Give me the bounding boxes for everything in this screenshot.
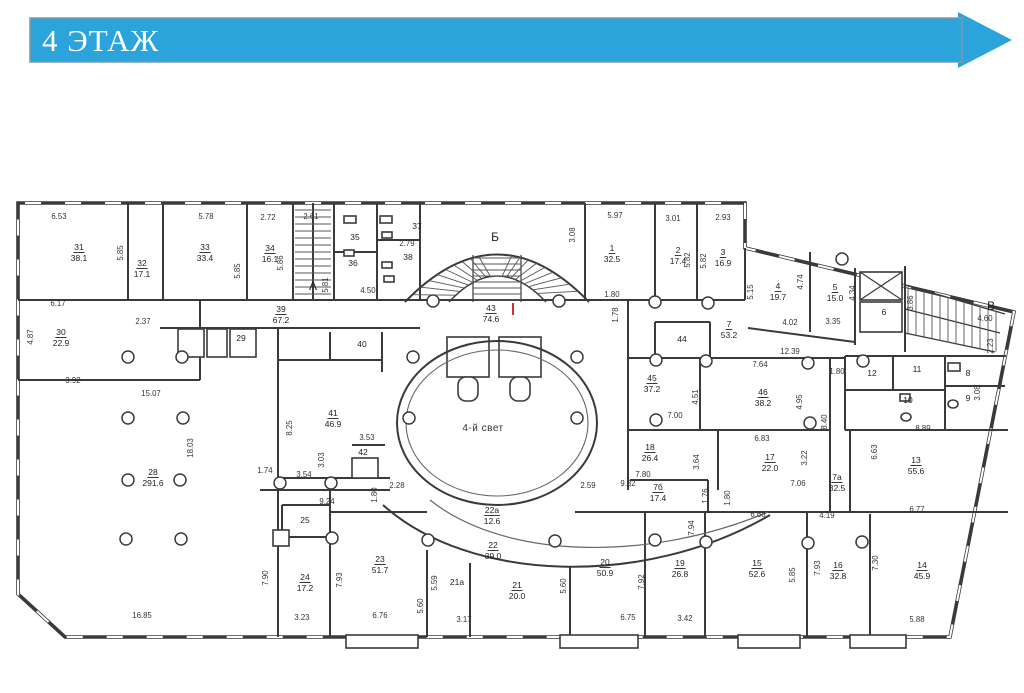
room-area: 17.1 [134, 269, 151, 279]
dimension-label: 6.75 [620, 613, 636, 622]
column [836, 253, 848, 265]
dimension-label: 7.00 [667, 411, 683, 420]
dimension-label: 4.74 [796, 274, 805, 290]
room-area: 53.2 [721, 330, 738, 340]
room-number: 4 [776, 281, 781, 291]
room-number: 11 [913, 364, 922, 374]
room-number: 16 [833, 560, 843, 570]
skylight-stem [458, 377, 478, 401]
room-number: 7 [727, 319, 732, 329]
wc-fixture [384, 276, 394, 282]
room-area: 32.8 [830, 571, 847, 581]
room-number: 22а [485, 505, 499, 515]
room-number: 46 [758, 387, 768, 397]
dimension-label: 6.53 [51, 212, 66, 221]
column [650, 414, 662, 426]
dimension-label: 4.50 [360, 286, 376, 295]
dimension-label: 12.39 [780, 347, 800, 356]
dimension-label: 1.80 [829, 367, 845, 376]
stair-label: А [309, 279, 317, 293]
room-number: 35 [350, 232, 360, 242]
dimension-label: 3.17 [456, 615, 471, 624]
dimension-label: 5.60 [559, 578, 568, 594]
dimension-label: 7.06 [790, 479, 805, 488]
dimension-label: 6.68 [750, 510, 765, 519]
room-42-box [352, 458, 378, 478]
dimension-label: 5.86 [276, 255, 285, 270]
column [122, 474, 134, 486]
dimension-label: 4.95 [795, 394, 804, 410]
column [326, 532, 338, 544]
dimension-label: 8.89 [915, 424, 930, 433]
column [802, 357, 814, 369]
room-area: 26.4 [642, 453, 659, 463]
column [274, 477, 286, 489]
dimension-label: 3.64 [692, 454, 701, 470]
facade-bay [850, 635, 906, 648]
dimension-label: 2.37 [135, 317, 150, 326]
column [650, 354, 662, 366]
floor-plan-page: 4 ЭТАЖ [0, 0, 1024, 693]
wc-fixture [382, 262, 392, 268]
dimension-label: 1.74 [257, 466, 273, 475]
dimension-label: 1.76 [701, 488, 710, 503]
skylight-stem [510, 377, 530, 401]
dimension-label: 3.42 [677, 614, 692, 623]
column [549, 535, 561, 547]
room-area: 22.0 [762, 463, 779, 473]
column [122, 351, 134, 363]
dimension-label: 2.61 [303, 212, 318, 221]
wc-fixture [948, 363, 960, 371]
dimension-label: 5.60 [416, 598, 425, 614]
room-area: 67.2 [273, 315, 290, 325]
room-area: 291.6 [142, 478, 164, 488]
dimension-label: 9.82 [620, 479, 635, 488]
dimension-label: 3.23 [294, 613, 309, 622]
page-title: 4 ЭТАЖ [42, 23, 159, 58]
header-bar [30, 18, 962, 62]
column [700, 355, 712, 367]
column [857, 355, 869, 367]
column [120, 533, 132, 545]
dimension-label: 9.24 [319, 497, 335, 506]
room-number: 38 [403, 252, 413, 262]
dimension-label: 2.79 [399, 239, 414, 248]
room-number: 12 [867, 368, 877, 378]
dimension-label: 3.03 [317, 452, 326, 467]
room-number: 37 [412, 221, 422, 231]
room-number: 30 [56, 327, 66, 337]
dimension-label: 3.92 [65, 376, 80, 385]
room-number: 8 [966, 368, 971, 378]
room-area: 55.6 [908, 466, 925, 476]
column [700, 536, 712, 548]
dimension-label: 5.82 [699, 253, 708, 268]
room-number: 28 [148, 467, 158, 477]
dimension-label: 4.87 [26, 329, 35, 344]
dimension-label: 1.80 [370, 487, 379, 503]
column [571, 351, 583, 363]
column [122, 412, 134, 424]
room-number: 29 [236, 333, 246, 343]
header-arrow-icon [958, 12, 1012, 68]
room-number: 6 [882, 307, 887, 317]
dimension-label: 6.83 [754, 434, 769, 443]
wc-fixture [344, 250, 354, 256]
room-number: 22 [488, 540, 498, 550]
wc-fixture [948, 400, 958, 408]
column [422, 534, 434, 546]
room-number: 33 [200, 242, 210, 252]
dimension-label: 7.93 [813, 560, 822, 575]
room-area: 39.0 [485, 551, 502, 561]
skylight-box [447, 337, 489, 377]
room-area: 12.6 [484, 516, 501, 526]
room-number: 10 [903, 395, 913, 405]
room-number: 3 [721, 247, 726, 257]
room-area: 50.9 [597, 568, 614, 578]
dimension-label: 3.01 [665, 214, 680, 223]
room-area: 17.4 [650, 493, 667, 503]
room-area: 17.2 [297, 583, 314, 593]
dimension-label: 5.97 [607, 211, 622, 220]
room-area: 26.8 [672, 569, 689, 579]
room-area: 52.6 [749, 569, 766, 579]
dimension-label: 6.76 [372, 611, 387, 620]
room-number: 21а [450, 577, 464, 587]
column [427, 295, 439, 307]
stair-label: В [987, 299, 995, 313]
floor-plan-svg: 4 ЭТАЖ [0, 0, 1024, 693]
facade-bay [346, 635, 418, 648]
wc-fixture [901, 413, 911, 421]
dimension-label: 3.08 [973, 385, 982, 400]
dimension-label: 3.35 [825, 317, 841, 326]
room-number: 1 [610, 243, 615, 253]
room-number: 17 [765, 452, 775, 462]
dimension-label: 5.15 [746, 284, 755, 300]
room-number: 15 [752, 558, 762, 568]
room-area: 37.2 [644, 384, 661, 394]
dimension-label: 7.90 [261, 570, 270, 586]
room-number: 18 [645, 442, 655, 452]
room-area: 51.7 [372, 565, 389, 575]
shaft-box [207, 329, 227, 357]
room-number: 42 [358, 447, 368, 457]
dimension-label: 3.53 [359, 433, 374, 442]
room-area: 32.5 [829, 483, 846, 493]
dimension-label: 1.80 [604, 290, 620, 299]
room-number: 39 [276, 304, 286, 314]
column [571, 412, 583, 424]
dimension-label: 8.25 [285, 420, 294, 436]
room-area: 38.1 [71, 253, 88, 263]
room-number: 31 [74, 242, 84, 252]
dimension-label: 2.59 [580, 481, 595, 490]
dimension-label: 3.22 [800, 450, 809, 465]
wc-fixture [344, 216, 356, 223]
dimension-label: 4.02 [782, 318, 797, 327]
column [407, 351, 419, 363]
room-number: 5 [833, 282, 838, 292]
room-number: 14 [917, 560, 927, 570]
room-number: 9 [966, 393, 971, 403]
column-box [273, 530, 289, 546]
dimension-label: 6.77 [909, 505, 924, 514]
room-number: 7а [832, 472, 842, 482]
column [649, 296, 661, 308]
facade-bay [738, 635, 800, 648]
column [802, 537, 814, 549]
room-number: 20 [600, 557, 610, 567]
dimension-label: 15.07 [141, 389, 161, 398]
dimension-label: 6.17 [50, 299, 65, 308]
room-number: 7б [653, 482, 663, 492]
room-number: 41 [328, 408, 338, 418]
dimension-label: 5.82 [683, 252, 692, 267]
dimension-label: 3.86 [906, 295, 915, 310]
dimension-label: 7.93 [335, 572, 344, 587]
dimension-label: 4.34 [848, 285, 857, 301]
dimension-label: 7.92 [637, 574, 646, 589]
column [177, 412, 189, 424]
dimension-label: 3.54 [296, 470, 312, 479]
room-area: 20.0 [509, 591, 526, 601]
room-number: 40 [357, 339, 367, 349]
dimension-label: 1.78 [611, 307, 620, 322]
column [403, 412, 415, 424]
room-number: 19 [675, 558, 685, 568]
stair-label: Б [491, 230, 499, 244]
dimension-label: 2.28 [389, 481, 404, 490]
dimension-label: 5.85 [116, 245, 125, 261]
room-number: 45 [647, 373, 657, 383]
outer-wall [18, 203, 1014, 637]
dimension-label: 7.64 [752, 360, 768, 369]
room-area: 16.9 [715, 258, 732, 268]
room-area: 22.9 [53, 338, 70, 348]
room-number: 23 [375, 554, 385, 564]
facade-bay [560, 635, 638, 648]
dimension-label: 5.85 [788, 567, 797, 583]
column [702, 297, 714, 309]
header-banner: 4 ЭТАЖ [30, 12, 1012, 68]
room-number: 24 [300, 572, 310, 582]
dimension-label: 4.19 [819, 511, 834, 520]
wc-fixture [380, 216, 392, 223]
dimension-label: 7.94 [687, 520, 696, 536]
room-area: 74.6 [483, 314, 500, 324]
room-number: 25 [300, 515, 310, 525]
dimension-label: 5.85 [233, 263, 242, 279]
column [176, 351, 188, 363]
dimension-label: 7.80 [635, 470, 651, 479]
dimension-label: 4.51 [691, 389, 700, 404]
room-number: 32 [137, 258, 147, 268]
dimension-label: 5.59 [430, 575, 439, 590]
room-area: 15.0 [827, 293, 844, 303]
dimension-label: 18.03 [186, 438, 195, 458]
dimension-label: 6.63 [870, 444, 879, 459]
room-number: 34 [265, 243, 275, 253]
dimension-label: 2.93 [715, 213, 730, 222]
dimension-label: 2.72 [260, 213, 275, 222]
room-number: 21 [512, 580, 522, 590]
column [649, 534, 661, 546]
column [553, 295, 565, 307]
atrium-label: 4-й свет [462, 423, 503, 434]
room-area: 32.5 [604, 254, 621, 264]
room-number: 43 [486, 303, 496, 313]
room-area: 33.4 [197, 253, 214, 263]
room-area: 45.9 [914, 571, 931, 581]
room-area: 46.9 [325, 419, 342, 429]
dimension-label: 7.30 [871, 555, 880, 571]
column [325, 477, 337, 489]
dimension-label: 1.80 [723, 490, 732, 506]
column [804, 417, 816, 429]
room-number: 13 [911, 455, 921, 465]
dimension-label: 5.88 [909, 615, 924, 624]
stair-b-tread [412, 295, 455, 296]
column [174, 474, 186, 486]
room-number: 44 [677, 334, 687, 344]
room-number: 2 [676, 245, 681, 255]
dimension-label: 8.40 [820, 414, 829, 430]
dimension-label: 5.81 [321, 277, 330, 292]
dimension-label: 5.78 [198, 212, 213, 221]
wc-fixture [382, 232, 392, 238]
dimension-label: 2.23 [986, 338, 995, 353]
room-area: 38.2 [755, 398, 772, 408]
column [856, 536, 868, 548]
dimension-label: 3.08 [568, 227, 577, 242]
dimension-label: 16.85 [132, 611, 152, 620]
room-area: 19.7 [770, 292, 787, 302]
room-number: 36 [348, 258, 358, 268]
dimension-label: 4.60 [977, 314, 993, 323]
column [175, 533, 187, 545]
